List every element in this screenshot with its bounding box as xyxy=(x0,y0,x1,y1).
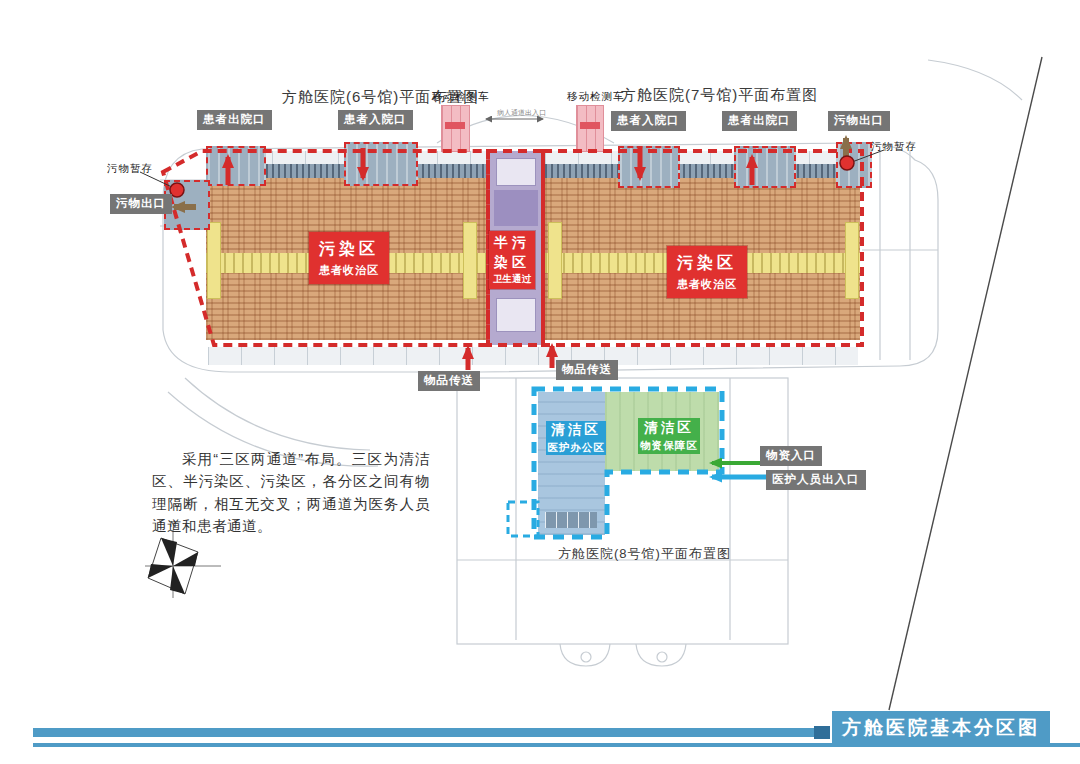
mobile-test-vehicle-left xyxy=(441,105,470,152)
fangcang-hospital-zoning-diagram: 方舱医院(6号馆)平面布置图 方舱医院(7号馆)平面布置图 方舱医院(8号馆)平… xyxy=(0,0,1080,764)
waste-storage-left-label: 污物暂存 xyxy=(107,162,153,176)
hall6-nurse-strip-left xyxy=(207,222,221,299)
zone-title-line2: 染区 xyxy=(489,254,535,270)
clean-office-cubicles xyxy=(545,512,597,528)
hall6-nurse-strip-right xyxy=(463,222,477,299)
zone-subtitle: 物资保障区 xyxy=(638,439,700,453)
boundary-diagonal-line xyxy=(889,57,1042,710)
zone-box-semi-contaminated: 半污 染区 卫生通过 xyxy=(489,231,535,289)
zone-subtitle: 卫生通过 xyxy=(489,273,535,286)
entry-room-waste-exit-right xyxy=(836,142,872,188)
hall7-nurse-strip-left xyxy=(548,222,562,299)
tag-patient-exit-left: 患者出院口 xyxy=(197,110,272,130)
zone-title: 污染区 xyxy=(667,253,747,274)
entry-room-patient-exit-right xyxy=(734,146,796,188)
mobile-test-vehicle-left-label: 移动检测车 xyxy=(432,90,490,104)
entry-room-patient-exit-left xyxy=(206,146,266,186)
tag-patient-entry-right: 患者入院口 xyxy=(611,111,686,131)
zone-title: 清洁区 xyxy=(546,421,606,439)
hygiene-pass-block xyxy=(494,190,538,226)
hall8-plan-title: 方舱医院(8号馆)平面布置图 xyxy=(558,545,731,563)
lower-rooms-strip xyxy=(208,347,858,365)
zone-subtitle: 患者收治区 xyxy=(309,263,389,278)
vehicle-marking xyxy=(445,122,465,129)
zone-title: 清洁区 xyxy=(638,419,700,437)
zone-subtitle: 患者收治区 xyxy=(667,277,747,292)
zone-title: 污染区 xyxy=(309,239,389,260)
entry-room-patient-entry-right xyxy=(618,146,680,188)
zone-box-clean-supply: 清洁区 物资保障区 xyxy=(638,418,700,454)
mobile-test-vehicle-right-label: 移动检测车 xyxy=(567,90,625,104)
zone-title-line1: 半污 xyxy=(489,234,535,250)
hygiene-pass-room-bottom xyxy=(496,298,536,332)
zone-subtitle: 医护办公区 xyxy=(546,441,606,455)
tag-waste-exit-top-right: 污物出口 xyxy=(828,111,890,131)
tag-staff-entry: 医护人员出入口 xyxy=(766,470,866,490)
zone-box-contaminated-left: 污染区 患者收治区 xyxy=(309,232,389,284)
footer-bar-cap xyxy=(814,726,830,739)
entry-room-patient-entry-left xyxy=(344,142,418,186)
diagram-title-banner: 方舱医院基本分区图 xyxy=(832,711,1050,744)
mobile-test-vehicle-right xyxy=(576,105,604,152)
tag-patient-entry-left: 患者入院口 xyxy=(338,110,413,130)
tag-patient-exit-right: 患者出院口 xyxy=(722,111,797,131)
hall7-nurse-strip-right xyxy=(845,222,859,299)
waste-storage-right-label: 污物暂存 xyxy=(871,140,917,154)
zone-box-contaminated-right: 污染区 患者收治区 xyxy=(667,246,747,298)
hall7-plan-title: 方舱医院(7号馆)平面布置图 xyxy=(621,86,818,105)
tag-supplies-entry: 物资入口 xyxy=(760,446,822,466)
footer-bar-thick xyxy=(33,728,814,737)
vehicle-marking xyxy=(580,122,600,129)
tag-waste-exit-left: 污物出口 xyxy=(110,194,172,214)
hall7-top-rooms xyxy=(545,151,860,164)
patient-passage-label: 病人通道出入口 xyxy=(497,108,546,118)
tag-goods-transfer-right: 物品传送 xyxy=(556,360,618,380)
hall7-equipment-strip xyxy=(545,164,860,178)
zone-box-clean-office: 清洁区 医护办公区 xyxy=(546,421,606,455)
layout-description: 采用“三区两通道”布局。三区为清洁区、半污染区、污染区，各分区之间有物理隔断，相… xyxy=(152,448,430,538)
tag-goods-transfer-left: 物品传送 xyxy=(418,371,480,391)
hygiene-pass-room-top xyxy=(496,158,536,186)
